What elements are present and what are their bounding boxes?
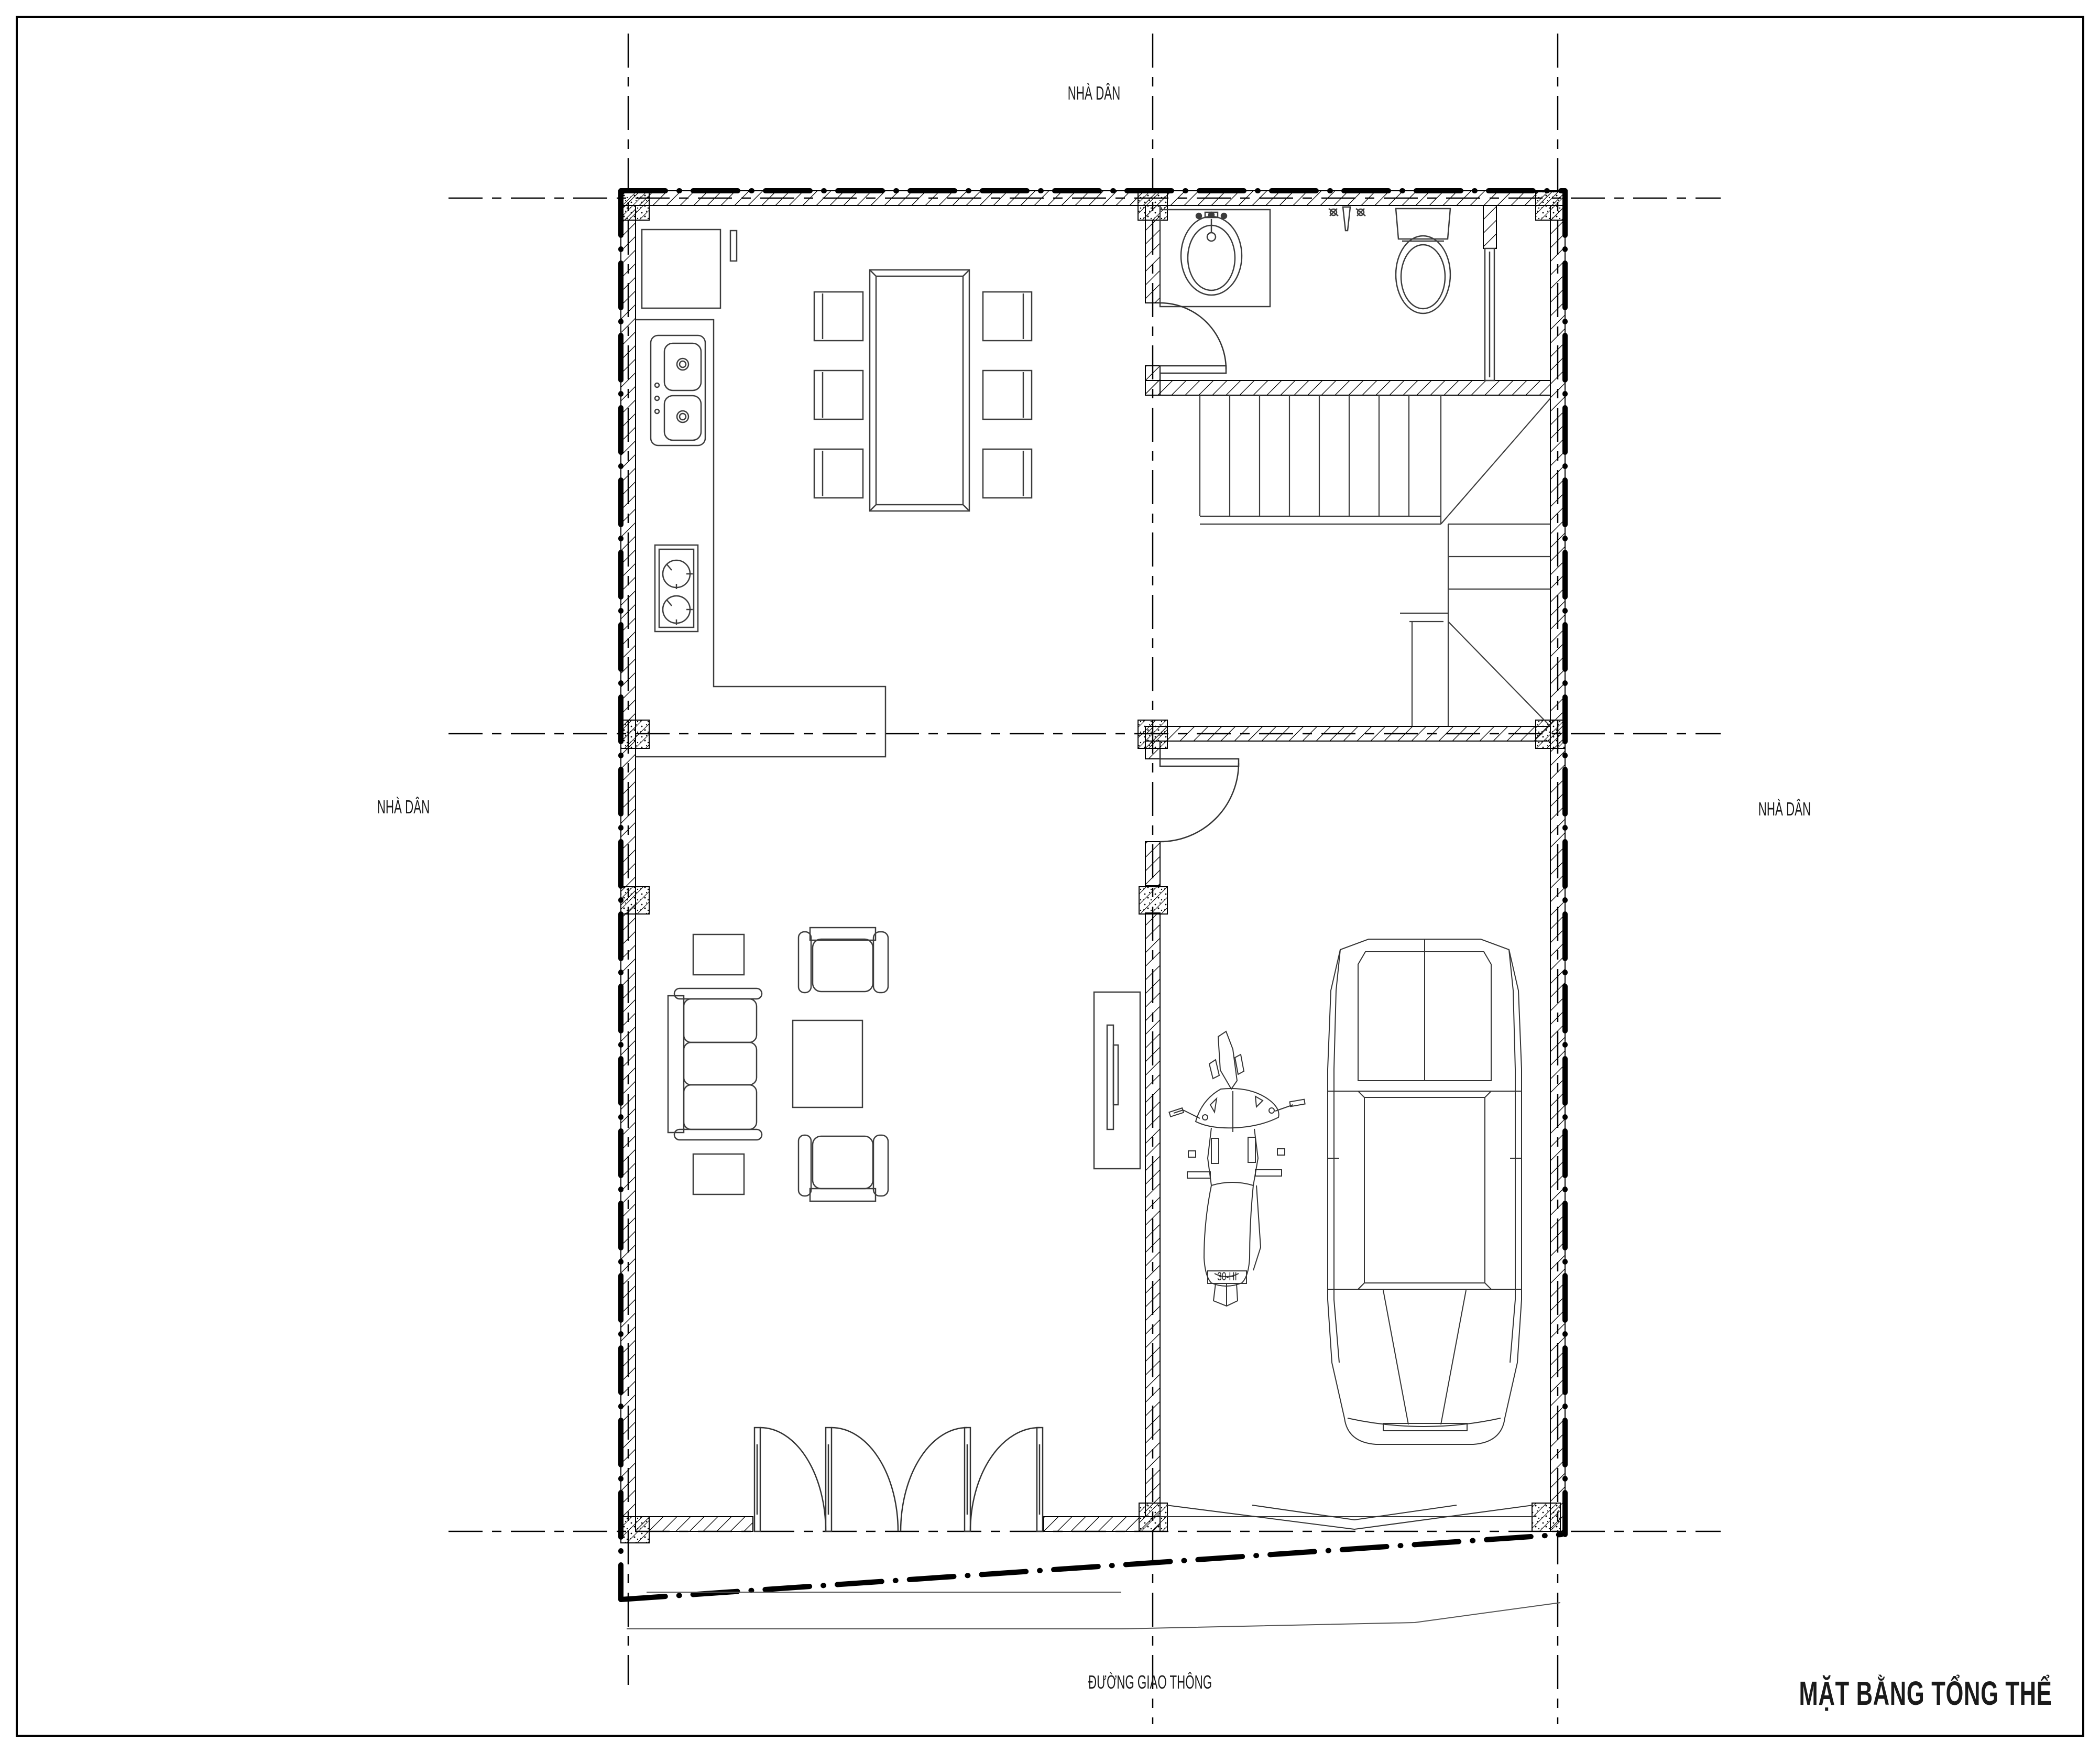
car-icon (1328, 939, 1522, 1444)
column (621, 1517, 649, 1543)
dining-table-icon (870, 270, 969, 511)
living-room (668, 928, 1140, 1201)
garage-threshold-chevrons (1160, 1505, 1535, 1529)
column (621, 720, 649, 748)
toilet-icon (1396, 209, 1450, 313)
kitchen-cabinet (642, 230, 720, 308)
wall-bathroom-partition-stub (1483, 205, 1496, 248)
dining-chair-icon (814, 449, 863, 498)
drawing-sheet: NHÀ DÂN NHÀ DÂN NHÀ DÂN ĐƯỜNG GIAO THÔNG… (0, 0, 2100, 1752)
bathroom-door-icon (1160, 303, 1226, 373)
dining-chair-icon (814, 292, 863, 341)
kitchen (636, 230, 885, 757)
column (1536, 192, 1565, 220)
label-road: ĐƯỜNG GIAO THÔNG (1088, 1672, 1212, 1693)
column (621, 887, 649, 914)
wall-middle (1145, 726, 1550, 741)
dining-chair-icon (983, 371, 1032, 419)
floor-plan-canvas: NHÀ DÂN NHÀ DÂN NHÀ DÂN ĐƯỜNG GIAO THÔNG… (0, 0, 2100, 1752)
side-table-icon (693, 934, 744, 975)
side-table-icon (693, 1154, 744, 1194)
column (1138, 192, 1167, 220)
armchair-icon (799, 928, 888, 993)
column (1138, 720, 1167, 748)
kitchen-sink-icon (651, 335, 705, 445)
kitchen-counter (636, 320, 885, 757)
dining-chair-icon (983, 449, 1032, 498)
bathroom-vanity-icon (1160, 210, 1270, 307)
coffee-table-icon (793, 1020, 862, 1107)
entrance-folding-door-icon (754, 1428, 1043, 1531)
bathroom-glass-partition (1485, 248, 1494, 380)
motorbike-icon (1169, 1031, 1305, 1306)
motorbike-cowl (1196, 1089, 1279, 1128)
walls (621, 191, 1565, 1531)
motorbike-rear-fender (1213, 1283, 1238, 1306)
armchair-icon (799, 1135, 888, 1201)
bathroom (1160, 207, 1494, 380)
column (1532, 1503, 1560, 1531)
stair-up-break-line (1441, 398, 1550, 524)
column (1536, 720, 1565, 748)
garage (1160, 939, 1535, 1529)
boundary-road-diagonal (621, 1535, 1561, 1599)
porch-steps (627, 1592, 1560, 1629)
sheet-border (17, 17, 2083, 1736)
column (1139, 887, 1167, 914)
label-neighbor-top: NHÀ DÂN (1068, 83, 1120, 104)
staircase-icon (1200, 395, 1550, 726)
wall-bathroom-bottom (1145, 380, 1550, 395)
wall-garage-divider-3 (1145, 913, 1160, 1517)
stove-icon (655, 545, 698, 632)
dining-chair-icon (983, 292, 1032, 341)
drawing-title: MẶT BẰNG TỔNG THỂ (1799, 1674, 2052, 1713)
stair-down-break-line (1448, 622, 1550, 726)
site-boundary (621, 191, 1565, 1599)
label-neighbor-right: NHÀ DÂN (1758, 799, 1811, 820)
label-neighbor-left: NHÀ DÂN (377, 797, 430, 818)
dining-area (814, 270, 1032, 511)
dining-chair-icon (814, 371, 863, 419)
sofa-icon (668, 988, 762, 1140)
pavement-edge-line (627, 1603, 1560, 1629)
tv-cabinet-icon (1094, 992, 1140, 1169)
shower-icon (1329, 207, 1365, 231)
motorbike-front-fender (1218, 1031, 1237, 1089)
column (621, 192, 649, 220)
garage-door-icon (1160, 759, 1239, 842)
kitchen-shelf (730, 231, 737, 261)
wall-bottom-left (636, 1517, 753, 1531)
grid-axes (449, 34, 1721, 1724)
wall-garage-divider-2 (1145, 842, 1160, 886)
motorbike-plate-text: 30-HI (1217, 1270, 1237, 1283)
